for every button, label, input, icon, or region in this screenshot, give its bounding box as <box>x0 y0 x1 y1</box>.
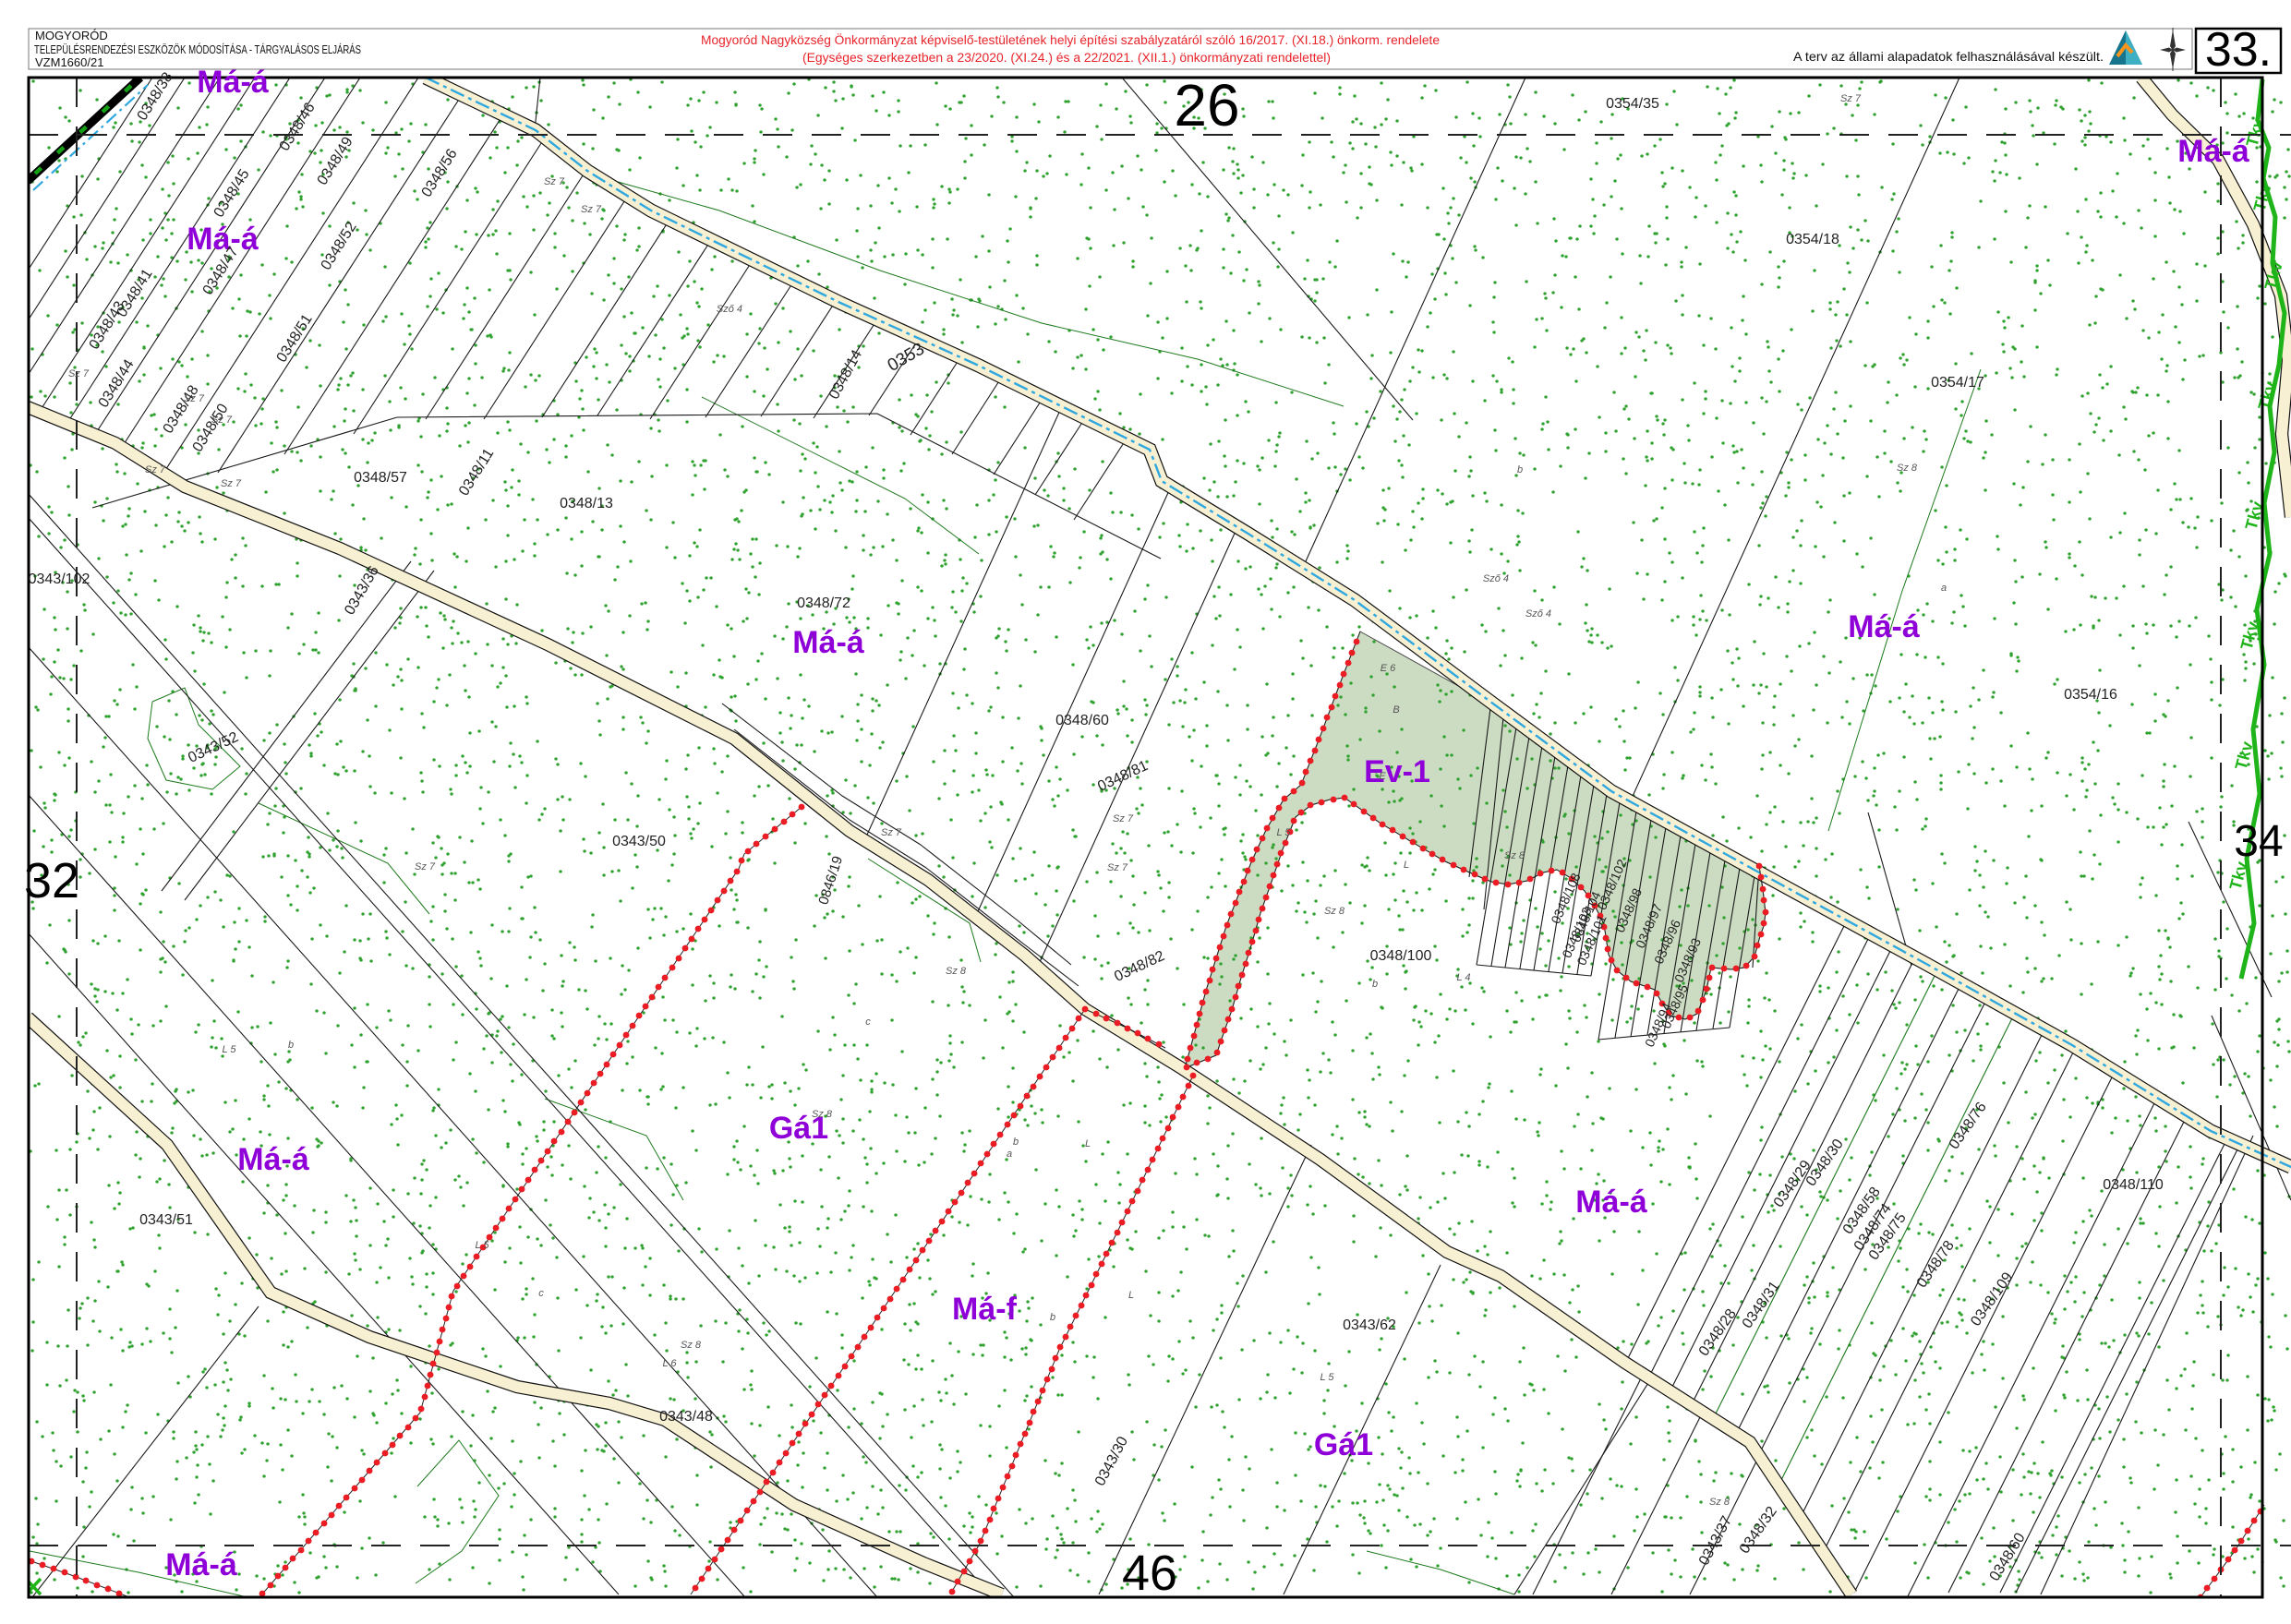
svg-text:Má-á: Má-á <box>1575 1185 1647 1220</box>
svg-text:Sz 7: Sz 7 <box>415 861 436 872</box>
svg-text:Sz 7: Sz 7 <box>881 827 902 838</box>
svg-text:Sz 7: Sz 7 <box>221 478 242 489</box>
svg-text:b: b <box>1013 1137 1019 1148</box>
svg-text:Sz 7: Sz 7 <box>211 415 233 426</box>
svg-text:Sz 7: Sz 7 <box>1840 93 1862 104</box>
svg-text:L: L <box>1128 1290 1134 1301</box>
svg-text:L 4: L 4 <box>1456 972 1470 983</box>
svg-text:Má-á: Má-á <box>237 1142 309 1177</box>
svg-text:0343/102: 0343/102 <box>29 571 90 587</box>
svg-text:Sző 4: Sző 4 <box>1483 573 1509 584</box>
svg-text:L 5: L 5 <box>222 1044 236 1055</box>
svg-text:0343/50: 0343/50 <box>612 834 666 849</box>
svg-text:Má-f: Má-f <box>952 1292 1018 1327</box>
svg-text:Sz 7: Sz 7 <box>184 393 205 404</box>
svg-text:26: 26 <box>1174 72 1239 138</box>
svg-text:Sz 7: Sz 7 <box>1107 862 1128 873</box>
svg-text:Sző 4: Sző 4 <box>1525 608 1551 620</box>
svg-text:Sz 8: Sz 8 <box>1897 463 1918 474</box>
svg-text:Sz 8: Sz 8 <box>1324 906 1345 917</box>
svg-text:32: 32 <box>24 853 79 908</box>
svg-text:Mogyoród Nagyközség Önkormányz: Mogyoród Nagyközség Önkormányzat képvise… <box>701 33 1440 47</box>
svg-text:33.: 33. <box>2205 23 2272 77</box>
svg-text:0354/35: 0354/35 <box>1606 96 1659 112</box>
svg-text:L 5: L 5 <box>1276 827 1291 838</box>
svg-text:0348/100: 0348/100 <box>1370 948 1432 964</box>
svg-text:L 5: L 5 <box>1320 1372 1334 1383</box>
svg-text:b: b <box>1050 1312 1055 1323</box>
svg-text:Má-á: Má-á <box>1848 609 1920 644</box>
svg-text:0354/17: 0354/17 <box>1931 375 1984 391</box>
svg-text:b: b <box>1372 979 1378 990</box>
svg-text:0354/18: 0354/18 <box>1786 232 1839 247</box>
svg-text:TELEPÜLÉSRENDEZÉSI ESZKÖZÖK MÓ: TELEPÜLÉSRENDEZÉSI ESZKÖZÖK MÓDOSÍTÁSA -… <box>34 42 361 56</box>
svg-text:Sz 8: Sz 8 <box>1709 1497 1730 1508</box>
svg-text:0348/57: 0348/57 <box>354 470 407 486</box>
svg-text:Sz 7: Sz 7 <box>1113 813 1134 824</box>
svg-text:46: 46 <box>1122 1546 1177 1601</box>
svg-text:Sz 7: Sz 7 <box>544 176 565 187</box>
svg-text:Sz 8: Sz 8 <box>681 1340 702 1351</box>
svg-text:Sz 8: Sz 8 <box>812 1109 833 1120</box>
svg-text:a: a <box>1007 1149 1012 1160</box>
svg-text:Má-á: Má-á <box>187 222 259 257</box>
svg-text:Ev-1: Ev-1 <box>1364 754 1430 789</box>
svg-text:34: 34 <box>2234 817 2283 866</box>
svg-text:Sző 4: Sző 4 <box>717 304 742 315</box>
svg-text:L: L <box>1404 860 1409 871</box>
svg-text:c: c <box>865 1017 871 1028</box>
svg-text:c: c <box>538 1288 544 1299</box>
svg-text:0348/72: 0348/72 <box>797 595 850 611</box>
svg-text:Sz 7: Sz 7 <box>581 204 602 215</box>
svg-text:Sz 8: Sz 8 <box>946 966 967 977</box>
svg-text:L: L <box>1085 1138 1091 1149</box>
svg-text:VZM1660/21: VZM1660/21 <box>35 55 103 69</box>
svg-text:MOGYORÓD: MOGYORÓD <box>35 29 108 42</box>
svg-text:B: B <box>1393 704 1399 716</box>
svg-text:b: b <box>1517 464 1523 475</box>
svg-text:Má-á: Má-á <box>197 65 269 100</box>
svg-text:Má-á: Má-á <box>2177 134 2249 169</box>
svg-text:Sz 7: Sz 7 <box>68 368 90 379</box>
svg-text:A terv az állami alapadatok fe: A terv az állami alapadatok felhasználás… <box>1793 49 2104 64</box>
svg-text:a: a <box>1941 583 1947 594</box>
svg-text:0354/16: 0354/16 <box>2064 687 2117 703</box>
svg-text:0343/51: 0343/51 <box>139 1212 193 1228</box>
svg-text:0348/110: 0348/110 <box>2103 1177 2164 1193</box>
svg-text:Má-á: Má-á <box>165 1547 237 1582</box>
svg-text:0348/13: 0348/13 <box>560 496 613 511</box>
svg-text:b: b <box>288 1040 294 1051</box>
svg-text:0343/62: 0343/62 <box>1343 1317 1396 1333</box>
svg-text:0343/48: 0343/48 <box>659 1409 713 1425</box>
svg-text:E: E <box>1379 771 1386 782</box>
svg-text:(Egységes szerkezetben a 23/20: (Egységes szerkezetben a 23/2020. (XI.24… <box>802 51 1331 65</box>
svg-text:E 6: E 6 <box>1381 663 1396 674</box>
svg-text:L 5: L 5 <box>475 1240 489 1251</box>
svg-text:Sz 7: Sz 7 <box>145 464 166 475</box>
svg-text:Gá1: Gá1 <box>1314 1427 1373 1462</box>
svg-text:Má-á: Má-á <box>792 625 864 660</box>
svg-text:0348/60: 0348/60 <box>1055 713 1109 728</box>
svg-text:L 6: L 6 <box>662 1358 677 1369</box>
svg-text:Sz 8: Sz 8 <box>1504 850 1525 861</box>
